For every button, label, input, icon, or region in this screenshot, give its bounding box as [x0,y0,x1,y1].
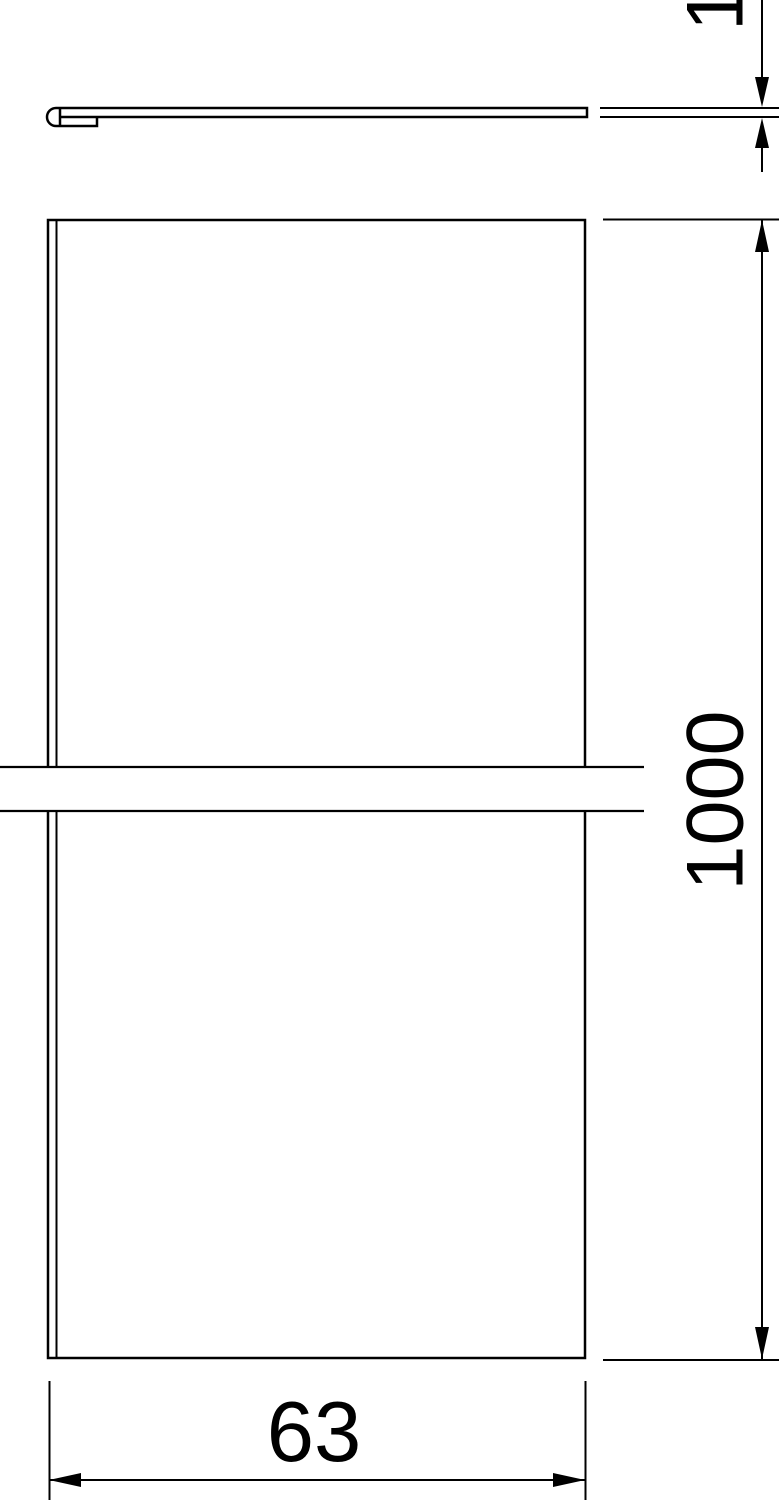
arrowhead-right-icon [553,1473,585,1487]
profile-outline [47,108,587,126]
break-band [0,766,644,812]
arrowhead-down-icon [755,1327,769,1359]
arrowhead-up-icon [755,118,769,148]
technical-drawing-page: 1 1000 63 [0,0,779,1500]
side-view-profile [47,108,587,126]
arrowhead-left-icon [49,1473,81,1487]
drawing-canvas [0,0,779,1500]
length-dim-label: 1000 [676,651,757,951]
break-mask [0,766,644,812]
width-dim-label: 63 [214,1390,414,1475]
arrowhead-down-icon [755,77,769,107]
arrowhead-up-icon [755,220,769,252]
thickness-dim-label: 1 [676,0,757,39]
thickness-extension-lines [600,108,779,117]
